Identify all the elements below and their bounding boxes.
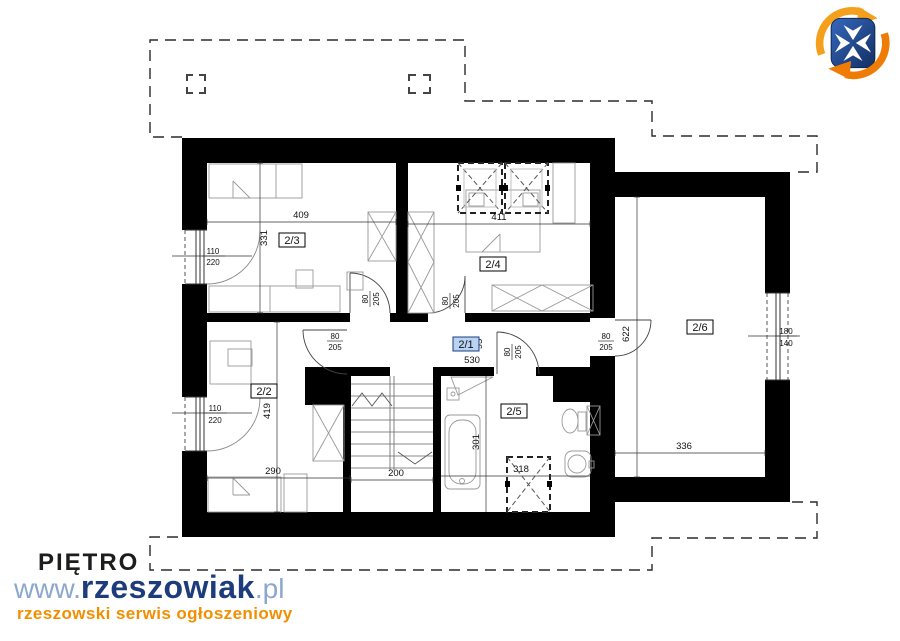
svg-text:80: 80 xyxy=(441,296,450,305)
dim-stairs-width: 200 xyxy=(388,468,404,479)
watermark-tld: .pl xyxy=(255,573,285,604)
svg-text:80: 80 xyxy=(602,332,611,341)
dim-2-5-height: 301 xyxy=(471,434,482,450)
svg-text:205: 205 xyxy=(372,292,381,306)
svg-text:205: 205 xyxy=(599,343,613,352)
dim-2-6-height: 622 xyxy=(621,326,632,342)
dimension-lines xyxy=(172,163,800,512)
window-label-2-2: 110 220 xyxy=(204,404,227,425)
svg-text:80: 80 xyxy=(503,347,512,356)
logo-shield-icon xyxy=(831,18,875,67)
window-2-2 xyxy=(185,397,260,451)
window-2-3 xyxy=(185,230,260,284)
watermark-tagline: rzeszowski serwis ogłoszeniowy xyxy=(17,604,293,624)
room-label-2-5: 2/5 xyxy=(501,404,527,418)
svg-text:140: 140 xyxy=(779,339,793,348)
dim-2-4-width: 411 xyxy=(491,212,506,223)
rzeszowiak-logo xyxy=(815,4,891,82)
watermark-brand-name: rzeszowiak xyxy=(81,569,255,605)
stairs xyxy=(351,376,433,470)
dim-2-1-length: 530 xyxy=(464,355,480,366)
svg-text:80: 80 xyxy=(361,294,370,303)
dim-2-6-width: 336 xyxy=(676,441,692,452)
dim-2-3-width: 409 xyxy=(293,210,309,221)
svg-text:180: 180 xyxy=(779,327,793,336)
door-label-2-6: 80 205 xyxy=(598,332,614,352)
door-label-2-3: 80 205 xyxy=(361,291,381,307)
opening-labels: 110 220 110 220 80 205 80 205 80 205 80 … xyxy=(202,247,797,425)
door-label-2-5: 80 205 xyxy=(503,344,523,360)
svg-text:2/4: 2/4 xyxy=(485,259,500,271)
room-label-2-4: 2/4 xyxy=(480,257,506,271)
dim-2-5-width: 318 xyxy=(513,464,529,475)
dim-2-2-height: 419 xyxy=(262,403,273,419)
room-label-2-1-selected: 2/1 xyxy=(453,337,479,351)
watermark-brand: www.rzeszowiak.pl xyxy=(14,569,284,606)
svg-text:205: 205 xyxy=(328,343,342,352)
svg-text:220: 220 xyxy=(206,258,220,267)
door-label-2-2: 80 205 xyxy=(327,332,343,352)
door-label-2-4: 80 205 xyxy=(441,293,461,309)
watermark-www-prefix: www. xyxy=(14,573,81,604)
room-label-2-2: 2/2 xyxy=(251,384,277,398)
floor-plan-drawing: 409 331 411 290 419 200 318 301 336 622 … xyxy=(0,0,900,641)
svg-text:2/3: 2/3 xyxy=(284,235,299,247)
svg-text:80: 80 xyxy=(331,332,340,341)
room-label-2-3: 2/3 xyxy=(279,233,305,247)
room-label-2-6: 2/6 xyxy=(687,320,713,334)
shower-icon xyxy=(451,377,493,395)
dim-2-2-width: 290 xyxy=(265,466,281,477)
svg-text:220: 220 xyxy=(208,416,222,425)
svg-text:2/6: 2/6 xyxy=(692,322,707,334)
chimney-bracket-icon xyxy=(187,75,430,93)
svg-text:2/1: 2/1 xyxy=(458,339,473,351)
floor-plan-page: 409 331 411 290 419 200 318 301 336 622 … xyxy=(0,0,900,641)
svg-text:2/5: 2/5 xyxy=(506,406,521,418)
toilet-icon xyxy=(562,409,578,433)
svg-text:2/2: 2/2 xyxy=(256,386,271,398)
dim-2-3-height: 331 xyxy=(259,230,270,246)
svg-text:205: 205 xyxy=(514,345,523,359)
svg-text:110: 110 xyxy=(209,404,222,413)
svg-text:110: 110 xyxy=(207,247,220,256)
svg-text:205: 205 xyxy=(452,294,461,308)
